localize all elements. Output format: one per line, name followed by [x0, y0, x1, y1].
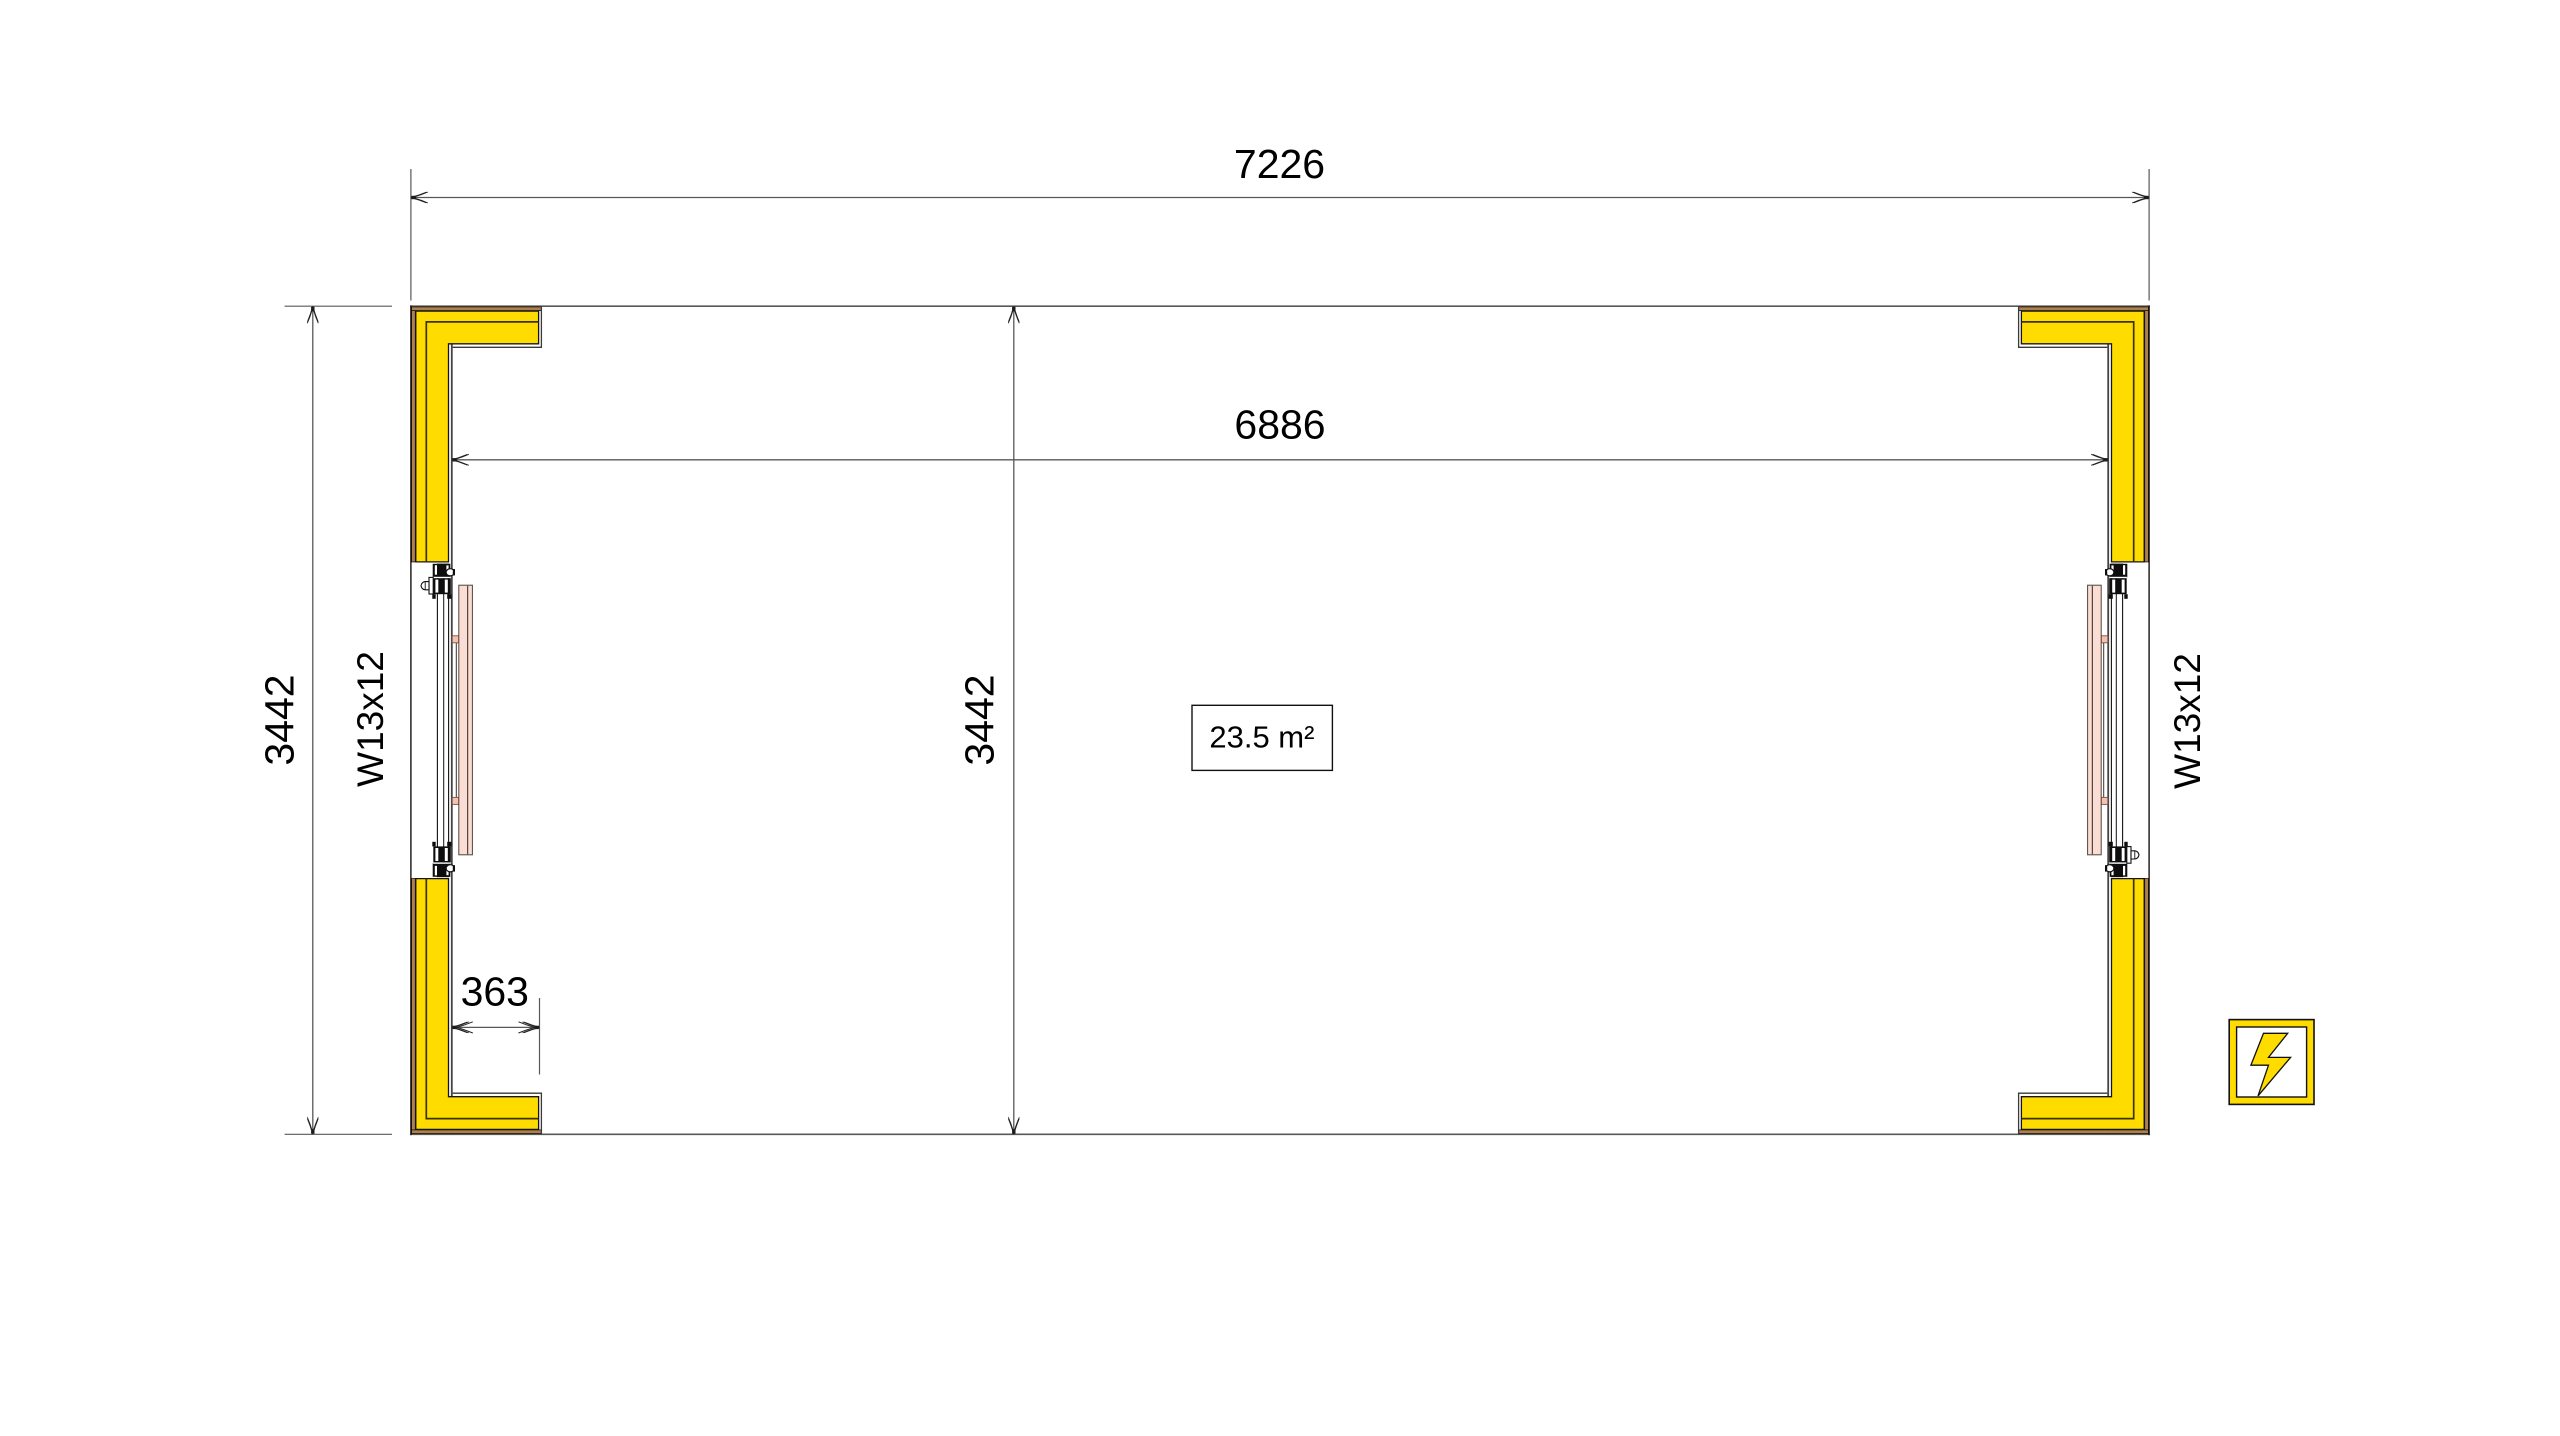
svg-text:7226: 7226: [1234, 141, 1325, 187]
svg-text:3442: 3442: [256, 674, 302, 765]
svg-text:W13x12: W13x12: [350, 651, 391, 787]
svg-text:363: 363: [461, 968, 529, 1014]
svg-text:3442: 3442: [956, 674, 1002, 765]
svg-text:23.5 m²: 23.5 m²: [1209, 719, 1314, 754]
svg-text:6886: 6886: [1234, 402, 1325, 448]
svg-text:W13x12: W13x12: [2167, 653, 2208, 789]
